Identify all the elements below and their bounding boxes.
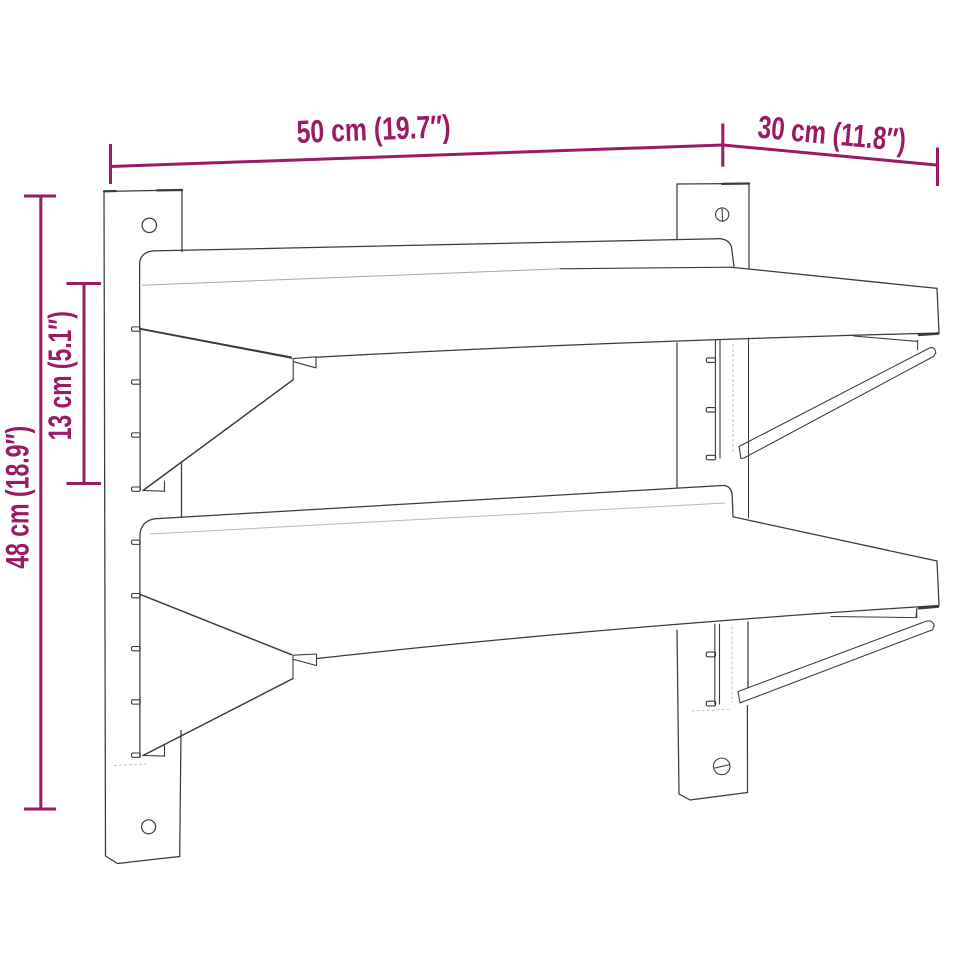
svg-text:48 cm (18.9″): 48 cm (18.9″) — [0, 426, 36, 569]
svg-text:50 cm (19.7″): 50 cm (19.7″) — [296, 108, 451, 150]
svg-text:13 cm (5.1″): 13 cm (5.1″) — [42, 311, 78, 440]
